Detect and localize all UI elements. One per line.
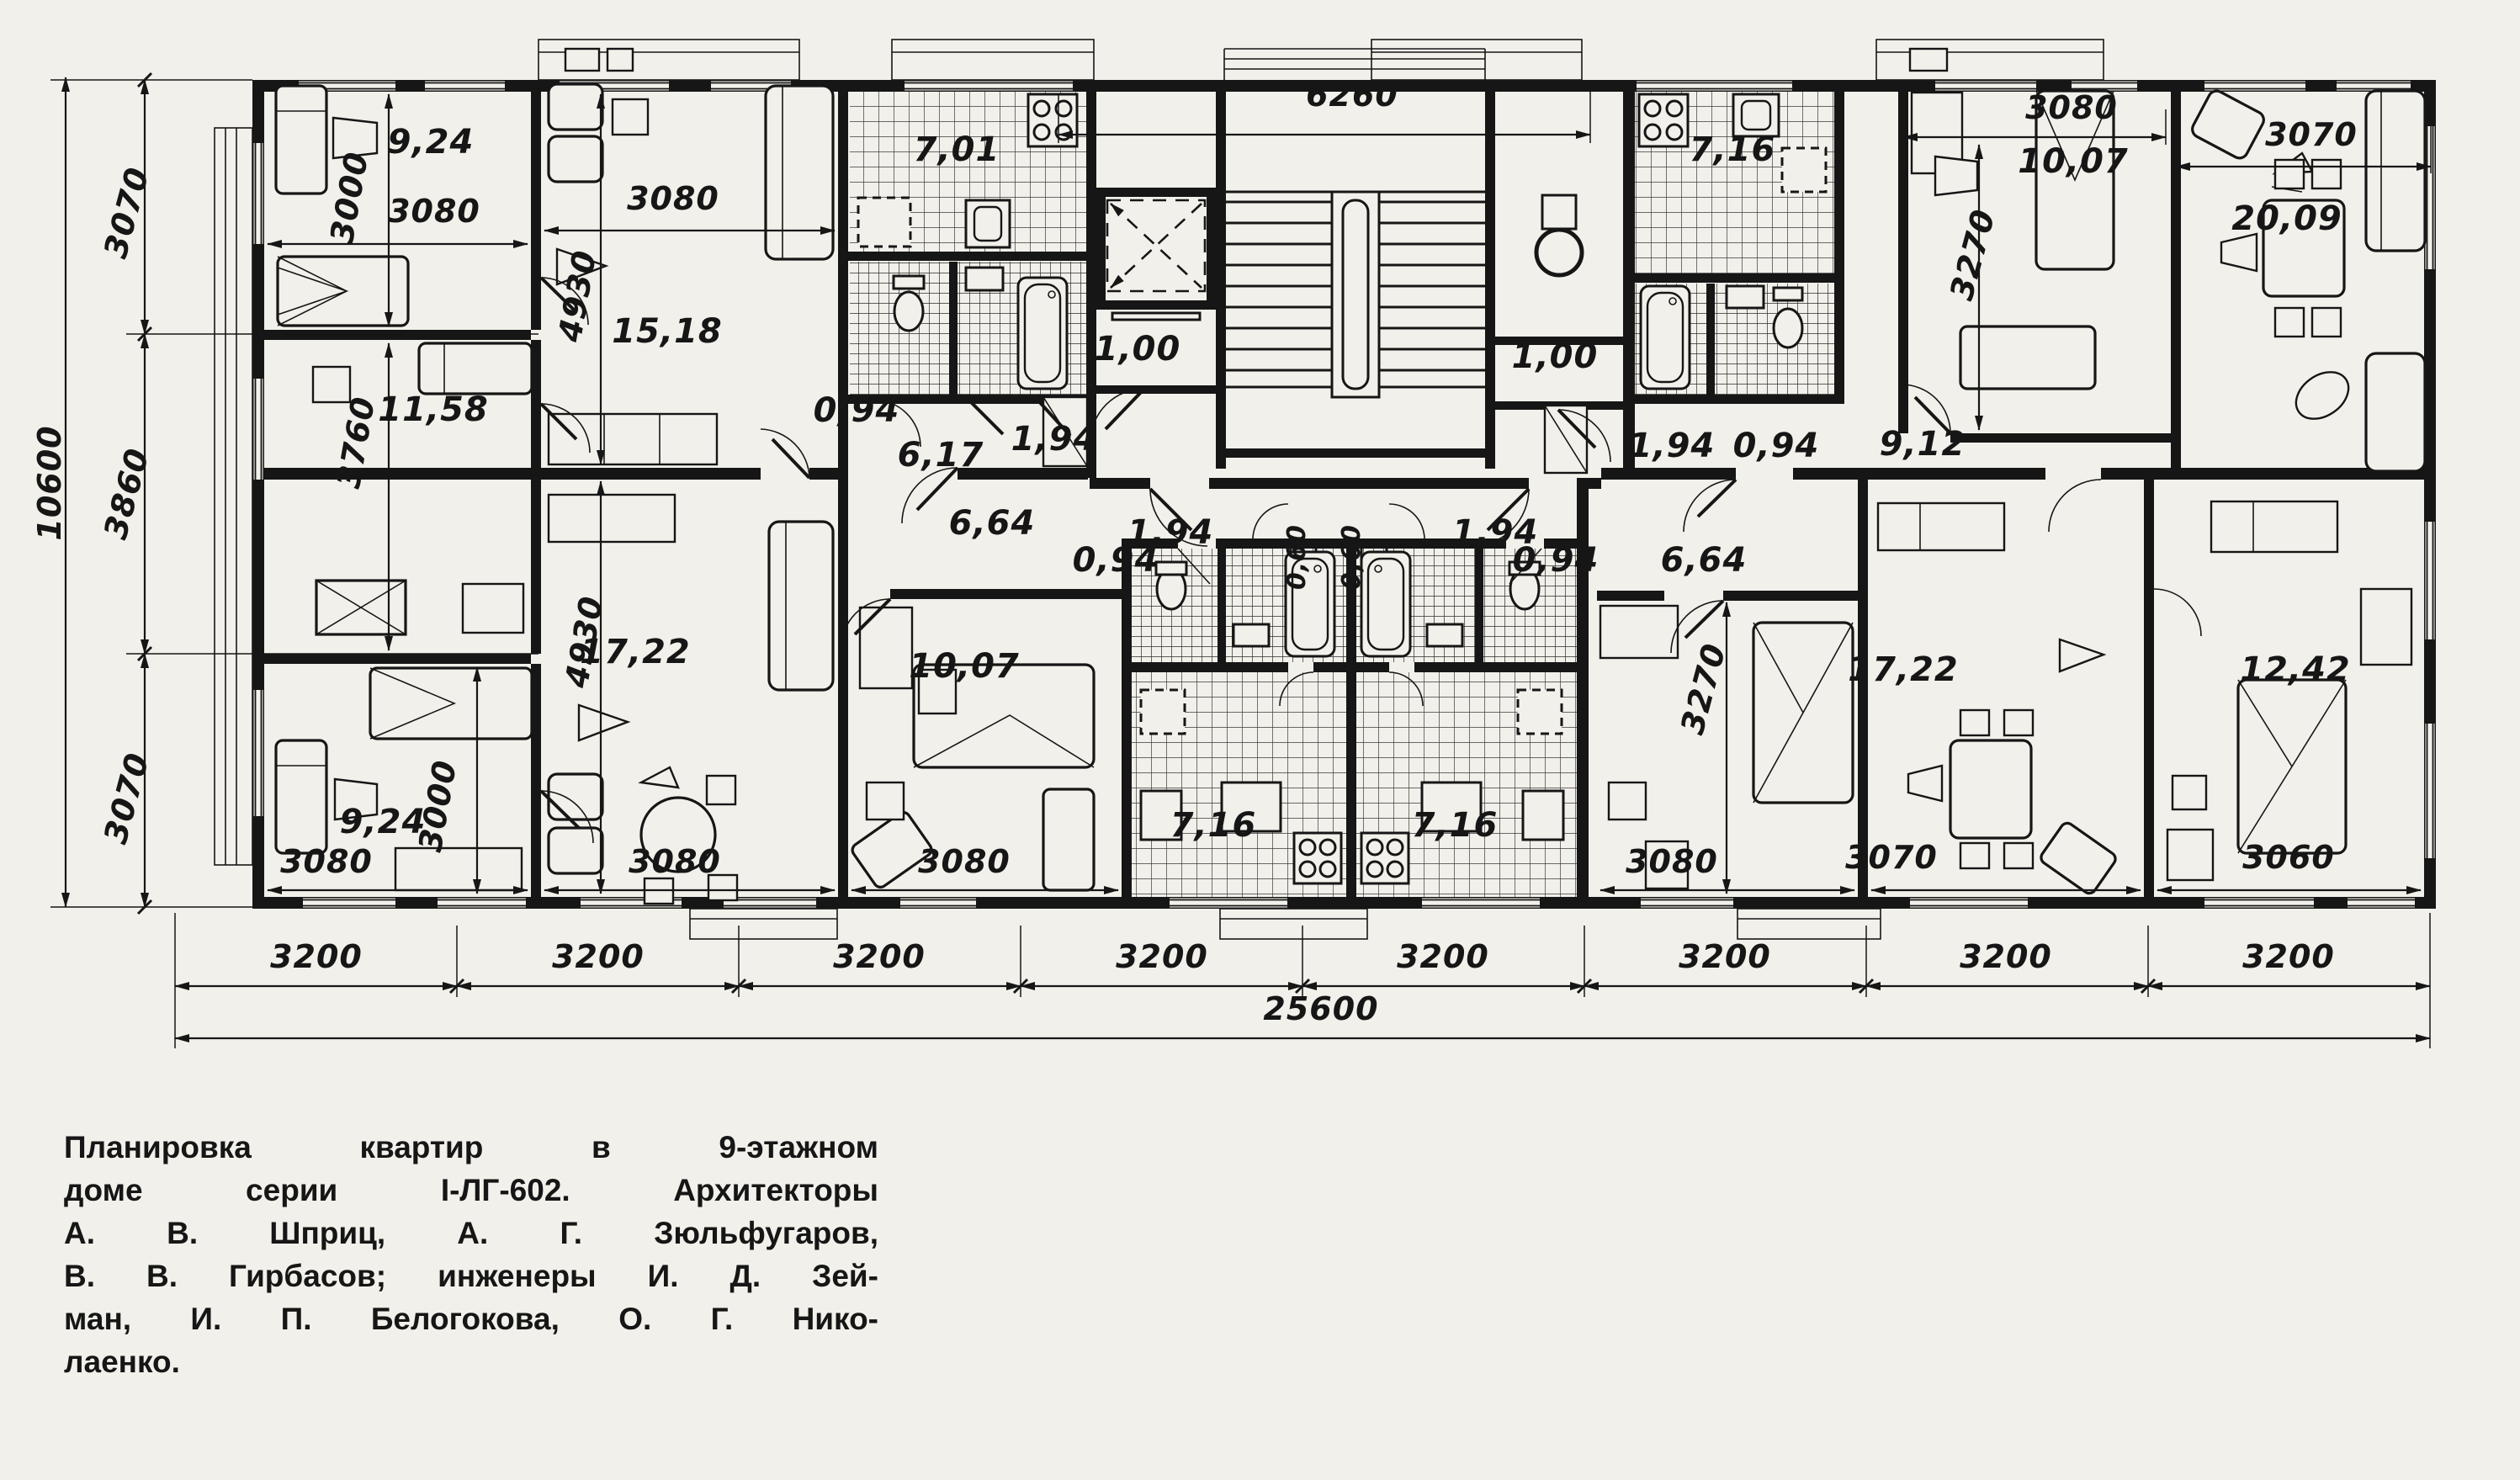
bottom-bays bbox=[690, 909, 1881, 939]
dimension-label: 3200 bbox=[552, 938, 645, 975]
room-area-label: 10,07 bbox=[909, 647, 1020, 686]
room-area-label: 11,58 bbox=[378, 390, 489, 429]
room-area-label: 6,64 bbox=[1661, 541, 1748, 580]
room-area-label: 15,18 bbox=[612, 312, 723, 351]
room-area-label: 6,64 bbox=[949, 504, 1036, 543]
dimension-label: 3200 bbox=[1679, 938, 1771, 975]
dimension-label: 3200 bbox=[1960, 938, 2052, 975]
stove-icon bbox=[1639, 94, 1688, 146]
dimension-label: 3080 bbox=[2025, 89, 2118, 126]
room-area-label: 20,09 bbox=[2231, 199, 2342, 238]
room-area-label: 7,01 bbox=[914, 130, 1000, 169]
caption-line: доме серии I-ЛГ-602. Архитекторы bbox=[64, 1169, 878, 1212]
room-area-label: 1,94 bbox=[1011, 420, 1098, 459]
room-area-label: 9,24 bbox=[388, 123, 475, 162]
dimension-label: 10600 bbox=[31, 425, 68, 540]
dimension-label: 3080 bbox=[629, 843, 721, 880]
dimension-label: 3000 bbox=[323, 149, 375, 247]
dimension-label: 3080 bbox=[280, 843, 373, 880]
dimension-label: 3070 bbox=[97, 749, 157, 847]
room-area-label: 7,16 bbox=[1412, 806, 1499, 845]
dimension-label: 3200 bbox=[1116, 938, 1208, 975]
dimension-label: 3080 bbox=[627, 180, 719, 217]
room-area-label: 0,94 bbox=[1513, 541, 1600, 580]
room-area-label: 1,00 bbox=[1095, 330, 1181, 369]
room-area-label: 1,94 bbox=[1127, 513, 1214, 552]
floor-plan-page: 9,2411,5815,187,010,946,171,941,007,161,… bbox=[0, 0, 2520, 1480]
caption: Планировка квартир в 9-этажном доме сери… bbox=[64, 1126, 878, 1383]
room-area-label: 6,17 bbox=[898, 436, 984, 475]
room-area-label: 0,94 bbox=[1733, 427, 1820, 465]
room-area-label: 1,94 bbox=[1629, 427, 1716, 465]
dimension-label: 6260 bbox=[1306, 77, 1398, 114]
room-area-label: 0,94 bbox=[814, 391, 900, 430]
dimension-label: 3200 bbox=[270, 938, 363, 975]
room-area-label: 7,16 bbox=[1170, 806, 1257, 845]
dimension-label: 4930 bbox=[558, 593, 611, 692]
caption-line: В. В. Гирбасов; инженеры И. Д. Зей- bbox=[64, 1255, 878, 1297]
dimension-label: 3200 bbox=[1397, 938, 1489, 975]
left-loggia bbox=[215, 128, 252, 865]
dimension-label: 3080 bbox=[918, 843, 1011, 880]
dimension-label: 3200 bbox=[2242, 938, 2335, 975]
dimension-label: 3000 bbox=[411, 757, 464, 855]
dimension-label: 0,60 bbox=[1282, 524, 1312, 590]
caption-line: Планировка квартир в 9-этажном bbox=[64, 1126, 878, 1169]
room-area-label: 1,00 bbox=[1512, 337, 1599, 376]
dimension-label: 3070 bbox=[1845, 839, 1938, 876]
caption-line: ман, И. П. Белогокова, О. Г. Нико- bbox=[64, 1297, 878, 1340]
dimension-label: 3270 bbox=[1943, 205, 2003, 304]
room-area-label: 7,16 bbox=[1690, 130, 1776, 169]
staircase bbox=[1226, 192, 1485, 397]
stove-icon bbox=[1028, 94, 1077, 146]
dimension-label: 25600 bbox=[1263, 990, 1378, 1027]
dimension-label: 0,60 bbox=[1337, 524, 1366, 590]
entrance-porch bbox=[1224, 49, 1485, 80]
room-area-label: 9,12 bbox=[1880, 425, 1966, 464]
room-area-label: 10,07 bbox=[2018, 142, 2129, 181]
room-area-label: 12,42 bbox=[2240, 650, 2351, 689]
stove-icon bbox=[1294, 833, 1341, 883]
dimension-label: 3080 bbox=[1626, 843, 1718, 880]
dimension-label: 3060 bbox=[2242, 839, 2335, 876]
dimension-label: 3860 bbox=[97, 444, 157, 543]
dimension-label: 3080 bbox=[388, 193, 480, 230]
dimension-label: 3070 bbox=[97, 163, 157, 262]
dimension-label: 3070 bbox=[2265, 116, 2358, 153]
room-area-label: 17,22 bbox=[1848, 650, 1959, 689]
dimension-label: 3200 bbox=[833, 938, 926, 975]
garbage-chute bbox=[1536, 195, 1582, 275]
dimension-label: 3270 bbox=[1674, 639, 1733, 738]
caption-line: А. В. Шприц, А. Г. Зюльфугаров, bbox=[64, 1212, 878, 1255]
stove-icon bbox=[1361, 833, 1409, 883]
caption-line: лаенко. bbox=[64, 1340, 878, 1383]
